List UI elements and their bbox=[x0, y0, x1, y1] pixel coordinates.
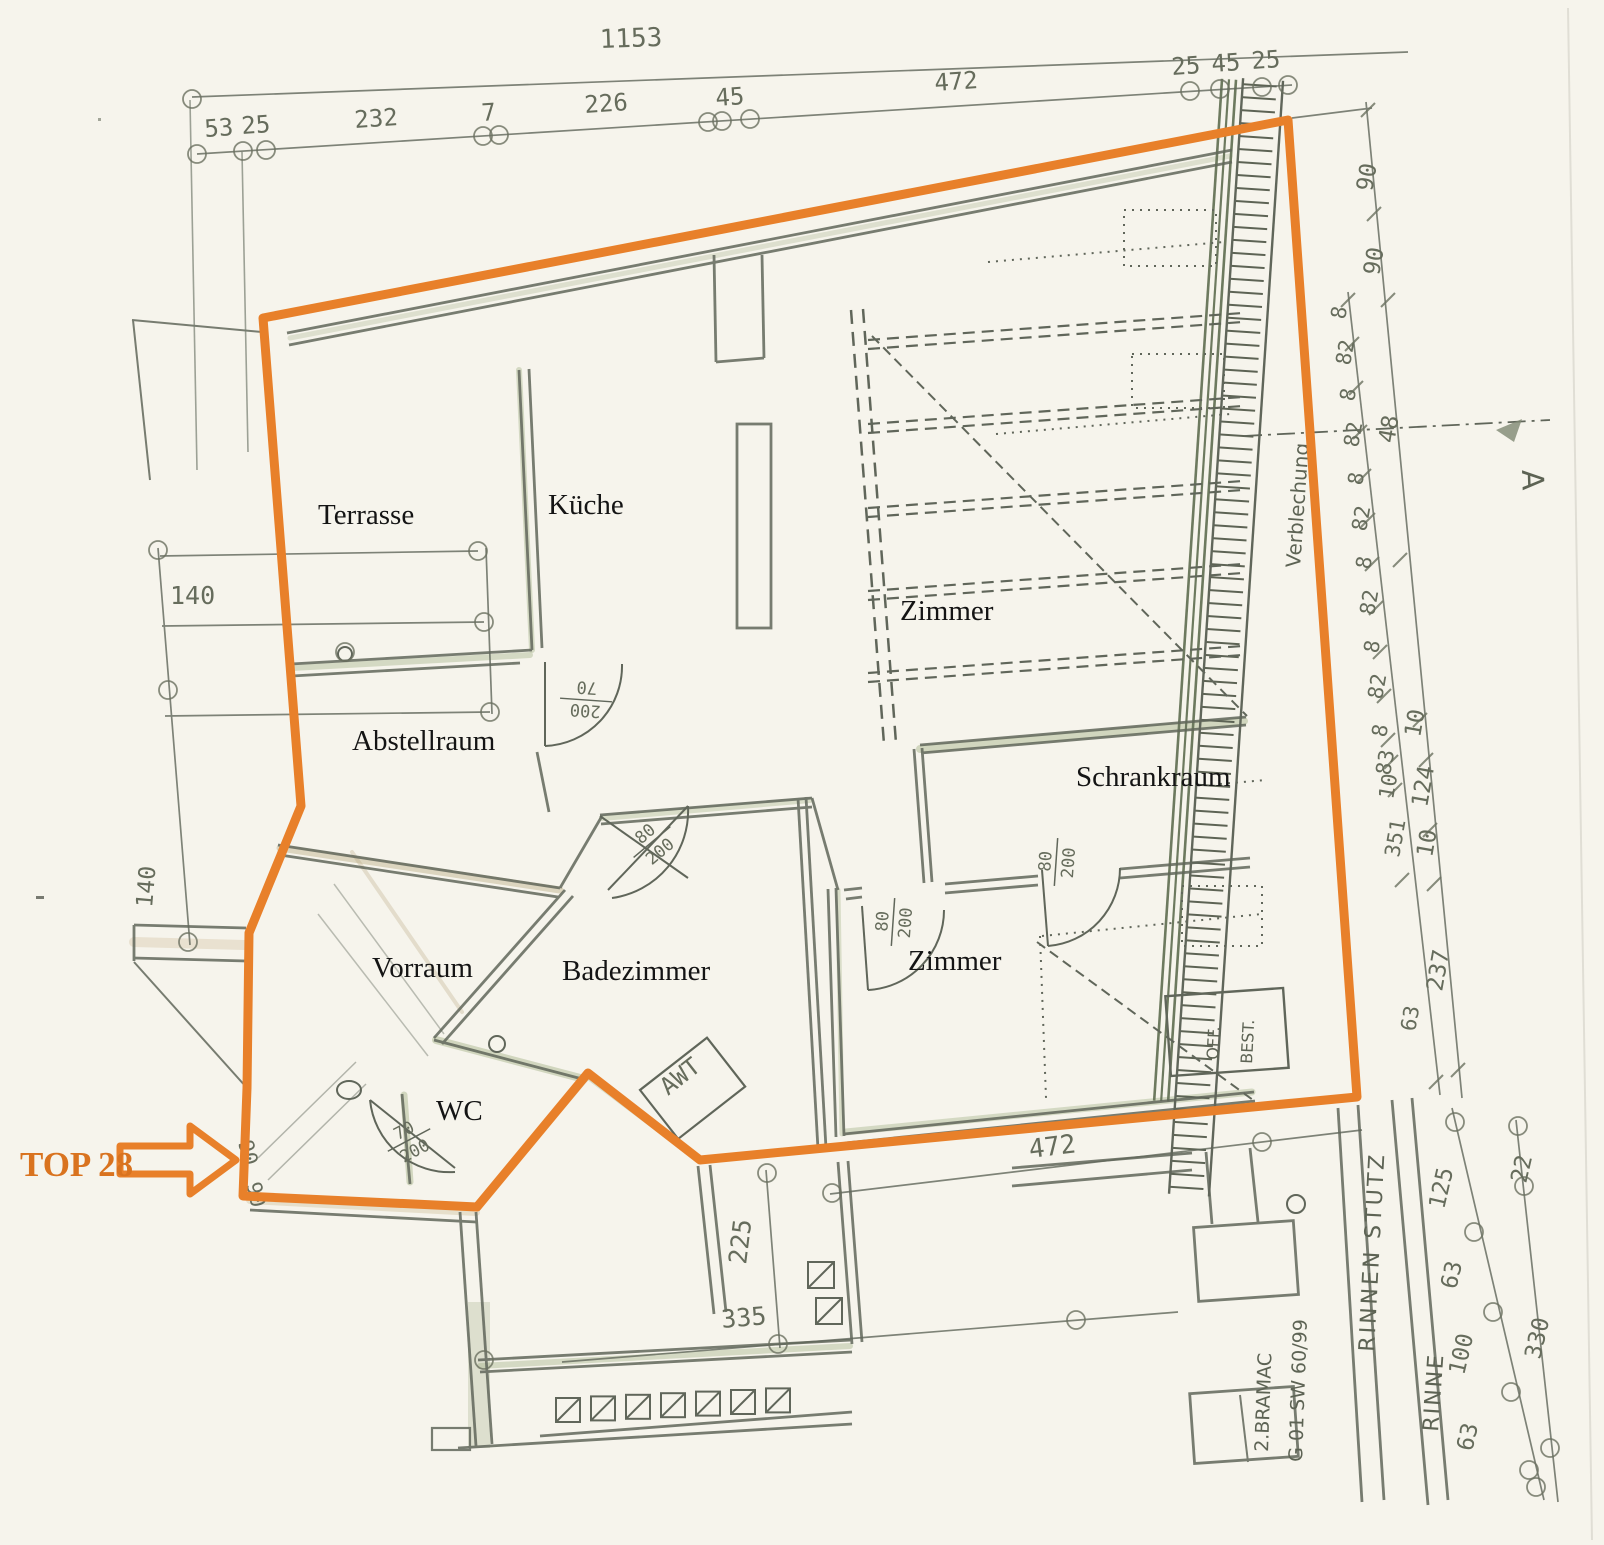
dim-top-chain-2: 232 bbox=[353, 103, 398, 134]
dim-top-chain-8: 45 bbox=[1210, 48, 1241, 78]
svg-text:200: 200 bbox=[895, 907, 917, 939]
dim-right-inner-12: 10 bbox=[1374, 772, 1402, 801]
svg-text:80: 80 bbox=[872, 910, 893, 932]
dim-right-inner-3: 82 bbox=[1339, 420, 1367, 449]
floor-plan-canvas: Terrasse Küche Zimmer Abstellraum Schran… bbox=[0, 0, 1604, 1545]
dim-top-total: 1153 bbox=[599, 23, 663, 55]
dim-top-chain-3: 7 bbox=[480, 98, 496, 127]
room-label-abstellraum: Abstellraum bbox=[352, 725, 496, 757]
dim-right-inner-2: 8 bbox=[1335, 386, 1361, 403]
top28-label: TOP 28 bbox=[20, 1145, 133, 1184]
label-section-a: A bbox=[1514, 469, 1550, 491]
dim-right-outer-2: 48 bbox=[1374, 413, 1404, 445]
dim-bottom-right-outer-1: 330 bbox=[1521, 1315, 1556, 1361]
room-label-vorraum: Vorraum bbox=[372, 952, 473, 984]
dim-right-inner-1: 82 bbox=[1331, 338, 1359, 367]
dim-bottom-right-inner-2: 100 bbox=[1445, 1331, 1480, 1377]
door-label-zimmer: 80 200 bbox=[871, 897, 917, 948]
room-label-zimmer-unten: Zimmer bbox=[908, 945, 1002, 977]
svg-text:200: 200 bbox=[1058, 847, 1080, 879]
room-label-terrasse: Terrasse bbox=[318, 499, 414, 531]
dim-right-inner-6: 8 bbox=[1351, 554, 1377, 571]
dim-right-inner-11: 83 bbox=[1371, 748, 1399, 777]
dim-right-inner-9: 82 bbox=[1363, 672, 1391, 701]
svg-text:200: 200 bbox=[569, 699, 601, 721]
dim-right-inner-13: 351 bbox=[1380, 817, 1410, 859]
dim-top-chain-6: 472 bbox=[933, 66, 978, 97]
dim-right-outer-3: 10 bbox=[1400, 707, 1430, 739]
label-best: BEST. bbox=[1237, 1019, 1258, 1064]
dim-right-inner-8: 8 bbox=[1359, 638, 1385, 655]
dim-right-inner-5: 82 bbox=[1347, 504, 1375, 533]
dim-right-inner-14: 63 bbox=[1396, 1004, 1424, 1033]
svg-text:70: 70 bbox=[576, 676, 598, 697]
dim-right-inner-7: 82 bbox=[1355, 588, 1383, 617]
dim-bottom-right-inner-1: 63 bbox=[1437, 1259, 1469, 1292]
room-label-wc: WC bbox=[436, 1095, 483, 1127]
label-bramac: 2.BRAMAC bbox=[1251, 1353, 1276, 1453]
dim-top-chain-7: 25 bbox=[1170, 51, 1201, 81]
dim-balcony-225: 225 bbox=[723, 1217, 757, 1265]
dim-right-outer-5: 10 bbox=[1412, 827, 1442, 859]
dim-left-140: 140 bbox=[170, 581, 215, 610]
dim-right-inner-10: 8 bbox=[1367, 722, 1393, 739]
dim-right-outer-6: 237 bbox=[1422, 948, 1455, 993]
dim-right-inner-4: 8 bbox=[1343, 470, 1369, 487]
annotation-labels: Verblechung RINNEN STUTZ RINNE 2.BRAMAC … bbox=[654, 442, 1549, 1462]
label-rinne: RINNE bbox=[1419, 1352, 1449, 1432]
label-awt: AWT bbox=[654, 1052, 705, 1101]
svg-text:80: 80 bbox=[1035, 850, 1056, 872]
dim-bottom-right-inner-3: 63 bbox=[1453, 1421, 1485, 1454]
dim-bottom-472: 472 bbox=[1027, 1129, 1077, 1165]
label-tile-code: G 01 SW 60/99 bbox=[1285, 1319, 1312, 1462]
dim-top-chain-0: 53 bbox=[203, 113, 234, 143]
dim-right-outer-4: 124 bbox=[1407, 764, 1440, 809]
dim-top-chain-9: 25 bbox=[1250, 45, 1281, 75]
dim-right-outer-0: 90 bbox=[1352, 161, 1382, 193]
dim-right-outer-1: 90 bbox=[1359, 245, 1389, 277]
room-label-kueche: Küche bbox=[548, 489, 624, 521]
top28-highlight: TOP 28 bbox=[20, 120, 1357, 1207]
dim-balcony-335: 335 bbox=[720, 1301, 768, 1334]
dim-right-inner-0: 8 bbox=[1326, 304, 1352, 321]
dim-bottom-right-outer-0: 22 bbox=[1507, 1153, 1539, 1186]
top28-arrow-icon bbox=[120, 1126, 236, 1194]
room-label-schrankraum: Schrankraum bbox=[1076, 761, 1231, 793]
label-off: OFF. bbox=[1203, 1026, 1224, 1060]
floor-plan-scan: Terrasse Küche Zimmer Abstellraum Schran… bbox=[0, 0, 1604, 1545]
dim-top-chain-1: 25 bbox=[240, 110, 271, 140]
room-label-zimmer-oben: Zimmer bbox=[900, 595, 994, 627]
room-label-badezimmer: Badezimmer bbox=[562, 955, 711, 987]
dim-left-140-vertical: 140 bbox=[132, 865, 162, 909]
dim-top-chain-5: 45 bbox=[714, 82, 745, 112]
label-rinnen-stutz: RINNEN STUTZ bbox=[1355, 1151, 1390, 1352]
dim-bottom-right-inner-0: 125 bbox=[1425, 1165, 1460, 1211]
door-label-schrankraum: 80 200 bbox=[1034, 837, 1080, 888]
dim-top-chain-4: 226 bbox=[583, 88, 628, 119]
